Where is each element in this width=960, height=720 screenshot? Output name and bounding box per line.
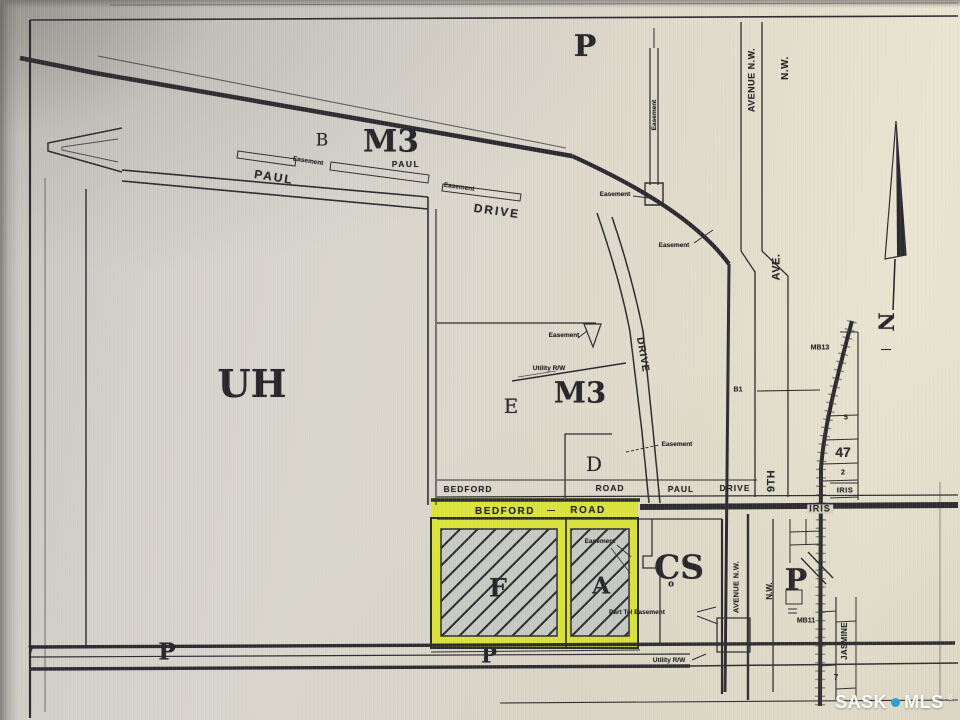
street-iris-box: IRIS — [837, 486, 854, 494]
zone-e: E — [504, 396, 519, 416]
map-labels-layer: PBM3UHEM3DCSoPPPFAPAULPAULDRIVEDRIVEAVEN… — [0, 0, 960, 720]
zoning-map-photo: PBM3UHEM3DCSoPPPFAPAULPAULDRIVEDRIVEAVEN… — [0, 0, 960, 720]
watermark-sask: SASK — [835, 692, 887, 713]
street-road-on-road: ROAD — [570, 506, 605, 516]
zone-p-bottom-mid: P — [481, 645, 497, 666]
street-avenue-nw-top: AVENUE N.W. — [748, 48, 757, 112]
watermark-dot-icon — [891, 698, 900, 707]
zone-b: B — [316, 133, 329, 150]
easement-mid: Easement — [549, 333, 580, 340]
street-avenue-nw-bottom: AVENUE N.W. — [732, 561, 740, 613]
lot-5: 5 — [844, 415, 848, 422]
easement-paul-2: Easement — [443, 183, 474, 194]
street-ave: AVE. — [772, 254, 783, 281]
street-bedford-dash: — — [547, 507, 555, 515]
compass-dash: — — [881, 345, 891, 355]
lot-b1: B1 — [734, 387, 743, 394]
street-iris-on-road: IRIS — [807, 505, 833, 514]
parcel-f-label: F — [489, 576, 507, 601]
street-nw-top: N.W. — [781, 56, 791, 80]
street-paul-small: PAUL — [392, 160, 421, 169]
zone-m3-mid: M3 — [554, 379, 606, 408]
part-tel-easement: Part Tel Easement — [609, 610, 665, 617]
zone-d: D — [586, 454, 602, 474]
street-nw-bottom: N.W. — [766, 582, 774, 599]
watermark-registered-mark: ® — [948, 693, 954, 702]
street-drive-south: DRIVE — [634, 337, 650, 374]
street-bedford-box: BEDFORD — [443, 485, 492, 494]
zone-m3-top: M3 — [363, 127, 419, 158]
compass-n-letter: N — [876, 312, 897, 331]
zone-p-right: P — [785, 566, 808, 596]
lot-mb13: MB13 — [811, 345, 830, 352]
street-drive-box: DRIVE — [720, 484, 751, 493]
zone-p-bottom-left: P — [158, 641, 175, 664]
lot-47: 47 — [835, 445, 851, 459]
street-drive-upper: DRIVE — [473, 202, 521, 220]
street-paul-upper: PAUL — [253, 168, 294, 186]
street-paul-box: PAUL — [668, 485, 695, 494]
easement-a: Easement — [585, 539, 616, 546]
parcel-a-label: A — [592, 575, 610, 598]
easement-curve-2: Easement — [659, 243, 690, 250]
zone-uh: UH — [217, 365, 286, 403]
lot-mb11: MB11 — [797, 618, 815, 625]
street-9th: 9TH — [767, 470, 778, 492]
utility-rw-mid: Utility R/W — [533, 366, 566, 373]
street-jasmine: JASMINE — [841, 622, 849, 660]
lot-7-left: 7 — [28, 646, 34, 657]
zone-p-top: P — [574, 32, 597, 62]
utility-rw-bottom: Utility R/W — [653, 658, 686, 665]
easement-curve-1: Easement — [600, 192, 631, 199]
easement-paul-1: Easement — [292, 156, 323, 167]
zone-cs: CS — [654, 551, 704, 584]
easement-d: Easement — [662, 442, 693, 449]
sask-mls-watermark: SASK MLS ® — [835, 692, 954, 713]
watermark-mls: MLS — [904, 692, 944, 713]
lot-7-right: 7 — [834, 674, 838, 682]
easement-strip-vertical: Easement — [652, 100, 659, 131]
lot-2: 2 — [841, 470, 845, 477]
street-road-box: ROAD — [595, 484, 624, 493]
street-bedford-on-road: BEDFORD — [475, 507, 535, 517]
zone-cs-sub: o — [668, 581, 674, 590]
